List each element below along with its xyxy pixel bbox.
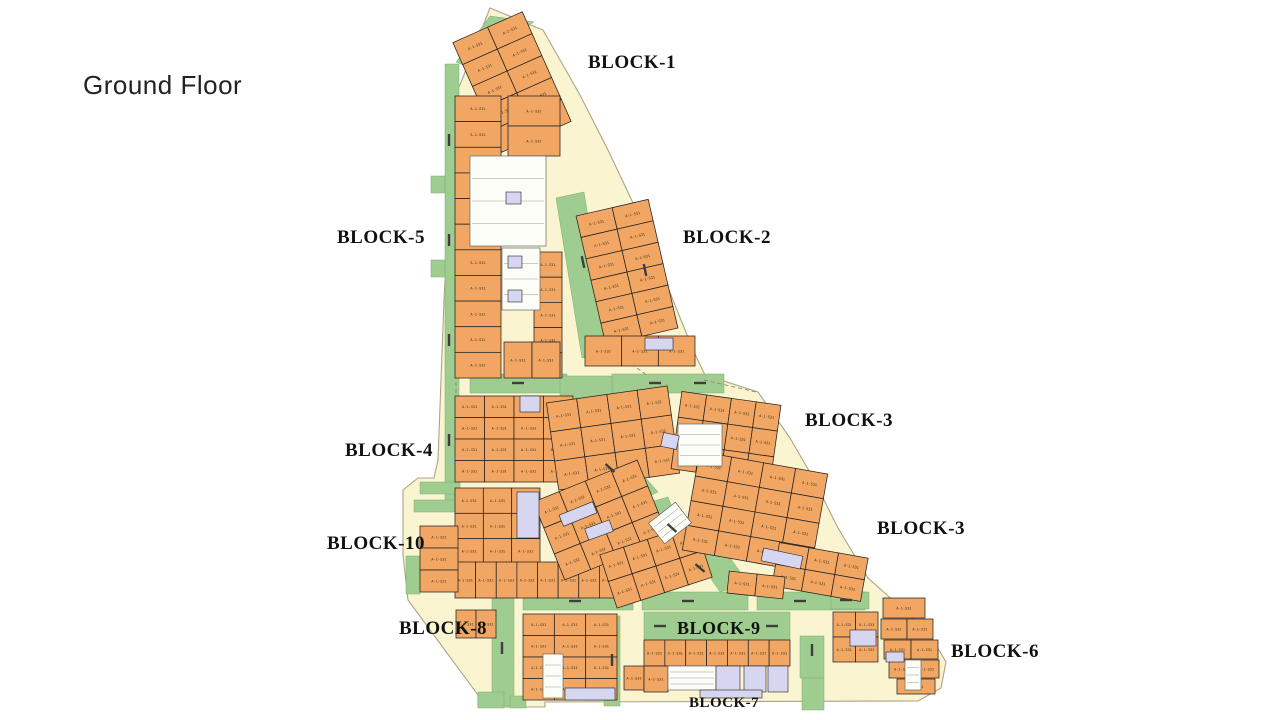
green-dash	[811, 644, 813, 656]
unit-label: A-1-S31	[462, 470, 477, 474]
unit-label: A-1-S31	[540, 313, 555, 317]
green-dash	[448, 334, 450, 346]
green-area	[406, 556, 420, 594]
unit-label: A-1-S31	[648, 677, 663, 681]
unit-label: A-1-S31	[518, 550, 533, 554]
block-label: BLOCK-1	[588, 52, 676, 73]
special-unit	[744, 666, 766, 692]
unit-label: A-1-S31	[668, 651, 683, 655]
unit-label: A-1-S31	[492, 427, 507, 431]
unit-label: A-1-S31	[709, 651, 724, 655]
unit-label: A-1-S31	[431, 557, 446, 561]
unit-label: A-1-S31	[470, 312, 485, 316]
unit-label: A-1-S31	[470, 287, 485, 291]
green-area	[431, 176, 445, 193]
green-dash	[840, 599, 852, 601]
unit-cluster: A-1-S31A-1-S31A-1-S31	[420, 526, 458, 592]
unit-label: A-1-S31	[890, 648, 905, 652]
unit-cluster: A-1-S31	[644, 666, 668, 692]
unit-cluster: A-1-S31A-1-S31	[508, 96, 560, 156]
unit-label: A-1-S31	[540, 288, 555, 292]
unit-label: A-1-S31	[626, 676, 641, 680]
unit-label: A-1-S31	[594, 623, 609, 627]
block-label: BLOCK-9	[677, 618, 761, 638]
unit-cluster: A-1-S31A-1-S31	[881, 619, 933, 639]
unit-label: A-1-S31	[531, 645, 546, 649]
unit-label: A-1-S31	[896, 606, 911, 610]
green-dash	[794, 600, 806, 602]
unit-label: A-1-S31	[647, 651, 662, 655]
block-label: BLOCK-2	[683, 227, 771, 248]
green-dash	[512, 382, 524, 384]
green-dash	[766, 625, 778, 627]
unit-label: A-1-S31	[470, 338, 485, 342]
unit-label: A-1-S31	[689, 651, 704, 655]
unit-label: A-1-S31	[490, 499, 505, 503]
block-label: BLOCK-3	[877, 518, 965, 539]
unit-label: A-1-S31	[837, 648, 852, 652]
unit-label: A-1-S31	[490, 524, 505, 528]
unit-label: A-1-S31	[917, 648, 932, 652]
green-dash	[448, 134, 450, 146]
green-dash	[448, 234, 450, 246]
unit-label: A-1-S31	[462, 524, 477, 528]
unit-label: A-1-S31	[521, 448, 536, 452]
unit-label: A-1-S31	[470, 261, 485, 265]
unit-label: A-1-S31	[886, 627, 901, 631]
unit-label: A-1-S31	[431, 535, 446, 539]
unit-label: A-1-S31	[492, 470, 507, 474]
block-label: BLOCK-6	[951, 641, 1039, 662]
unit-label: A-1-S31	[538, 358, 553, 362]
special-unit	[517, 492, 539, 538]
unit-label: A-1-S31	[540, 263, 555, 267]
unit-label: A-1-S31	[859, 648, 874, 652]
unit-label: A-1-S31	[526, 139, 541, 143]
green-area	[420, 482, 460, 494]
unit-label: A-1-S31	[431, 579, 446, 583]
unit-label: A-1-S31	[470, 107, 485, 111]
unit-label: A-1-S31	[531, 623, 546, 627]
unit-label: A-1-S31	[462, 427, 477, 431]
unit-label: A-1-S31	[458, 578, 473, 582]
unit-cluster: A-1-S31A-1-S31A-1-S31A-1-S31A-1-S31A-1-S…	[644, 640, 790, 666]
unit-label: A-1-S31	[520, 578, 535, 582]
unit-label: A-1-S31	[772, 651, 787, 655]
special-unit	[508, 290, 522, 302]
unit-label: A-1-S31	[462, 550, 477, 554]
unit-label: A-1-S31	[594, 666, 609, 670]
unit-label: A-1-S31	[562, 623, 577, 627]
unit-label: A-1-S31	[510, 358, 525, 362]
unit-cluster: A-1-S31A-1-S31A-1-S31A-1-S31A-1-S31A-1-S…	[523, 614, 617, 700]
unit-label: A-1-S31	[462, 499, 477, 503]
green-dash	[694, 382, 706, 384]
special-unit	[506, 192, 521, 204]
unit-label: A-1-S31	[859, 623, 874, 627]
unit-label: A-1-S31	[462, 448, 477, 452]
block-label: BLOCK-4	[345, 440, 433, 461]
special-unit	[716, 666, 740, 692]
unit-cluster: A-1-S31A-1-S31A-1-S31	[585, 336, 695, 366]
unit-label: A-1-S31	[492, 405, 507, 409]
unit-label: A-1-S31	[912, 627, 927, 631]
unit-label: A-1-S31	[478, 578, 493, 582]
service-core	[543, 654, 563, 698]
unit-label: A-1-S31	[594, 645, 609, 649]
unit-cluster: A-1-S31	[883, 598, 925, 618]
green-dash	[569, 600, 581, 602]
special-unit	[508, 256, 522, 268]
service-core	[678, 424, 722, 466]
special-unit	[768, 666, 788, 692]
unit-cluster: A-1-S31A-1-S31	[504, 342, 560, 378]
special-unit	[565, 688, 615, 700]
green-dash	[649, 382, 661, 384]
green-dash	[654, 625, 666, 627]
unit-label: A-1-S31	[540, 578, 555, 582]
unit-label: A-1-S31	[462, 405, 477, 409]
special-unit	[850, 630, 876, 646]
green-dash	[448, 434, 450, 446]
unit-label: A-1-S31	[561, 578, 576, 582]
green-area	[478, 692, 504, 708]
block-label: BLOCK-8	[399, 618, 487, 639]
green-area	[800, 636, 824, 678]
green-area	[431, 260, 445, 277]
service-core	[668, 666, 716, 690]
unit-label: A-1-S31	[730, 651, 745, 655]
unit-label: A-1-S31	[521, 427, 536, 431]
unit-label: A-1-S31	[562, 645, 577, 649]
special-unit	[645, 338, 673, 350]
unit-label: A-1-S31	[526, 109, 541, 113]
block-label: BLOCK-3	[805, 410, 893, 431]
block-label: BLOCK-5	[337, 227, 425, 248]
unit-label: A-1-S31	[562, 666, 577, 670]
block-label: BLOCK-10	[327, 533, 425, 554]
green-dash	[501, 642, 503, 654]
green-area	[414, 500, 460, 512]
unit-label: A-1-S31	[751, 651, 766, 655]
service-core	[905, 660, 921, 690]
unit-label: A-1-S31	[581, 578, 596, 582]
unit-label: A-1-S31	[490, 550, 505, 554]
unit-cluster: A-1-S31	[624, 666, 644, 690]
unit-label: A-1-S31	[492, 448, 507, 452]
special-unit	[520, 396, 540, 412]
unit-label: A-1-S31	[470, 133, 485, 137]
green-area	[802, 678, 824, 710]
screenshot-root: Ground Floor A-1-S31A-1-S31A-1-S31A-1-S3…	[0, 0, 1280, 720]
special-unit	[661, 432, 680, 449]
unit-label: A-1-S31	[596, 349, 611, 353]
unit-label: A-1-S31	[521, 470, 536, 474]
block-label: BLOCK-7	[689, 695, 759, 711]
green-dash	[611, 654, 613, 666]
unit-label: A-1-S31	[837, 623, 852, 627]
green-dash	[682, 600, 694, 602]
special-unit	[886, 652, 904, 662]
floor-plan-svg: A-1-S31A-1-S31A-1-S31A-1-S31A-1-S31A-1-S…	[0, 0, 1280, 720]
unit-label: A-1-S31	[470, 364, 485, 368]
unit-label: A-1-S31	[499, 578, 514, 582]
